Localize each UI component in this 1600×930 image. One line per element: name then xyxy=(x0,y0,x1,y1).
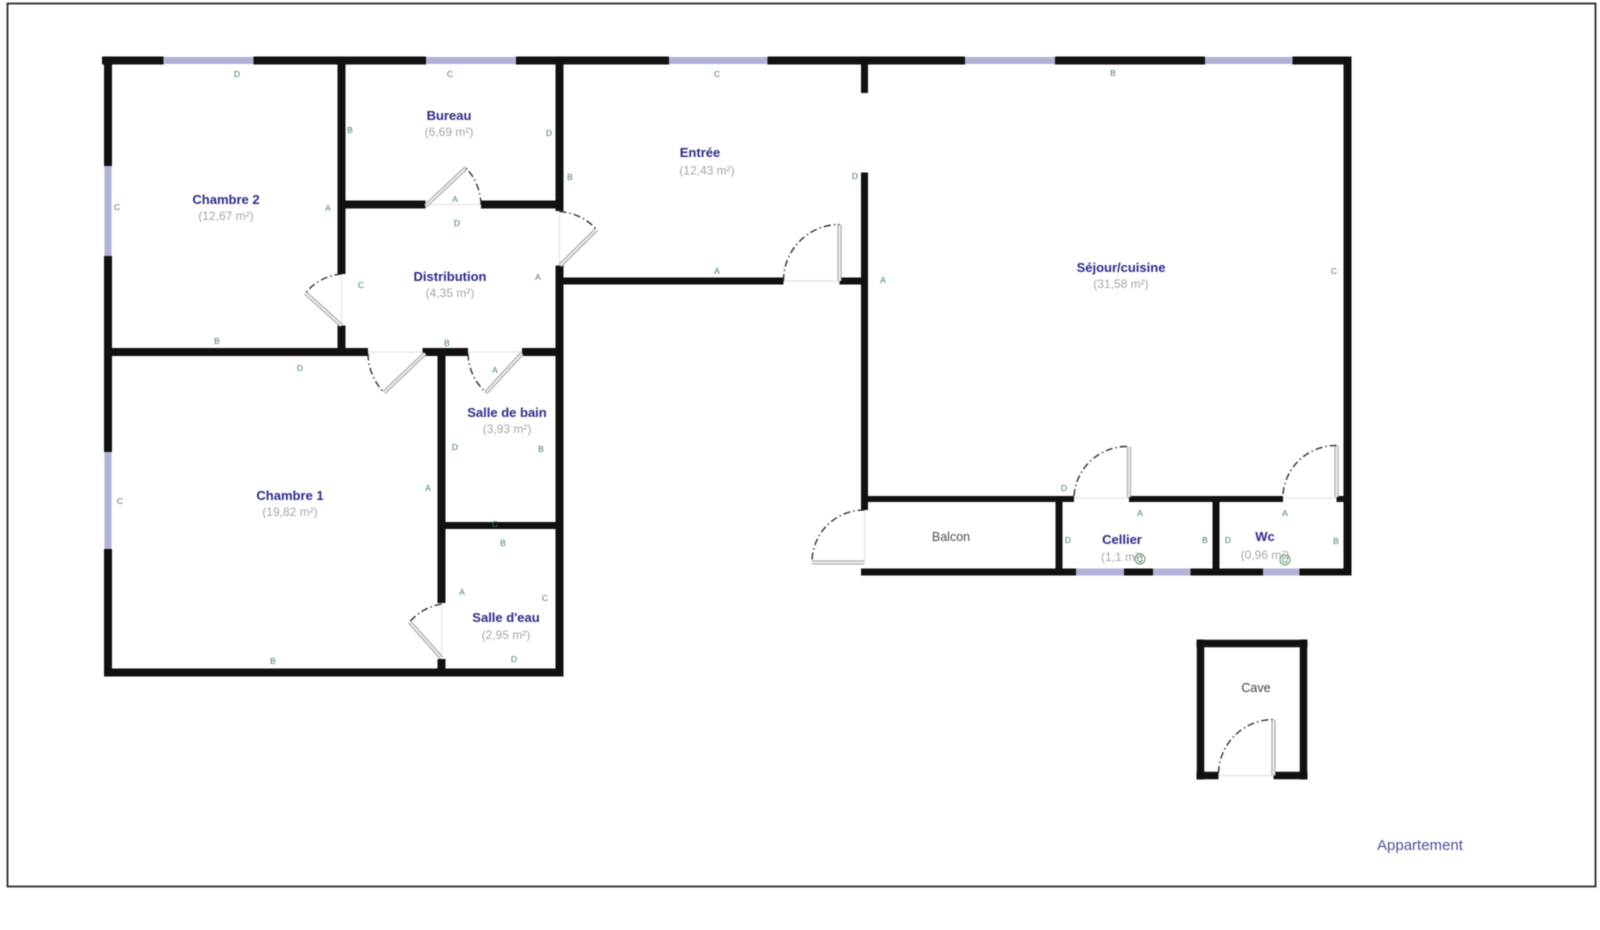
svg-text:B: B xyxy=(538,444,544,454)
svg-text:A: A xyxy=(452,194,458,204)
svg-text:C: C xyxy=(714,69,720,79)
svg-text:Salle d'eau: Salle d'eau xyxy=(472,610,539,625)
svg-text:A: A xyxy=(880,275,886,285)
svg-text:A: A xyxy=(325,203,331,213)
svg-text:Séjour/cuisine: Séjour/cuisine xyxy=(1077,260,1166,275)
svg-text:B: B xyxy=(444,338,450,348)
svg-text:A: A xyxy=(1137,508,1143,518)
svg-text:D: D xyxy=(1225,535,1231,545)
svg-text:B: B xyxy=(1333,536,1339,546)
svg-text:B: B xyxy=(347,125,353,135)
svg-text:(4,35 m²): (4,35 m²) xyxy=(426,286,475,300)
svg-text:D: D xyxy=(454,218,460,228)
svg-text:B: B xyxy=(1110,68,1116,78)
svg-text:A: A xyxy=(459,587,465,597)
svg-text:D: D xyxy=(452,442,458,452)
svg-text:Cellier: Cellier xyxy=(1102,532,1142,547)
svg-text:B: B xyxy=(1202,535,1208,545)
svg-text:Salle de bain: Salle de bain xyxy=(467,405,547,420)
svg-text:A: A xyxy=(714,266,720,276)
svg-text:D: D xyxy=(1061,483,1067,493)
svg-text:Appartement: Appartement xyxy=(1377,837,1464,854)
svg-text:D: D xyxy=(852,171,858,181)
svg-text:D: D xyxy=(511,654,517,664)
svg-text:A: A xyxy=(492,365,498,375)
svg-text:(2,95 m²): (2,95 m²) xyxy=(482,628,531,642)
svg-text:A: A xyxy=(425,483,431,493)
svg-text:C: C xyxy=(114,202,120,212)
svg-text:(12,43 m²): (12,43 m²) xyxy=(679,164,734,178)
svg-text:Distribution: Distribution xyxy=(414,269,487,284)
svg-text:(6,69 m²): (6,69 m²) xyxy=(425,125,474,139)
svg-text:Chambre 2: Chambre 2 xyxy=(192,192,259,207)
svg-text:Chambre 1: Chambre 1 xyxy=(256,488,323,503)
svg-text:Wc: Wc xyxy=(1255,529,1275,544)
svg-text:D: D xyxy=(297,363,303,373)
svg-text:C: C xyxy=(358,280,364,290)
svg-text:(19,82 m²): (19,82 m²) xyxy=(262,505,317,519)
svg-text:A: A xyxy=(535,272,541,282)
svg-text:C: C xyxy=(1282,555,1288,565)
svg-text:A: A xyxy=(1282,508,1288,518)
svg-text:D: D xyxy=(1065,535,1071,545)
svg-text:C: C xyxy=(117,496,123,506)
svg-text:C: C xyxy=(492,519,498,529)
svg-text:C: C xyxy=(542,593,548,603)
svg-text:Balcon: Balcon xyxy=(932,530,970,544)
svg-text:C: C xyxy=(1331,266,1337,276)
svg-text:Cave: Cave xyxy=(1241,681,1270,695)
svg-text:(31,58 m²): (31,58 m²) xyxy=(1093,277,1148,291)
svg-text:B: B xyxy=(270,656,276,666)
svg-text:D: D xyxy=(234,69,240,79)
svg-text:Entrée: Entrée xyxy=(680,145,720,160)
svg-text:(12,67 m²): (12,67 m²) xyxy=(198,209,253,223)
svg-text:C: C xyxy=(447,69,453,79)
svg-text:B: B xyxy=(567,172,573,182)
svg-text:B: B xyxy=(500,538,506,548)
svg-text:(3,93 m²): (3,93 m²) xyxy=(483,422,532,436)
svg-text:C: C xyxy=(1137,554,1143,564)
svg-text:Bureau: Bureau xyxy=(427,108,472,123)
svg-text:B: B xyxy=(214,336,220,346)
svg-text:D: D xyxy=(546,128,552,138)
